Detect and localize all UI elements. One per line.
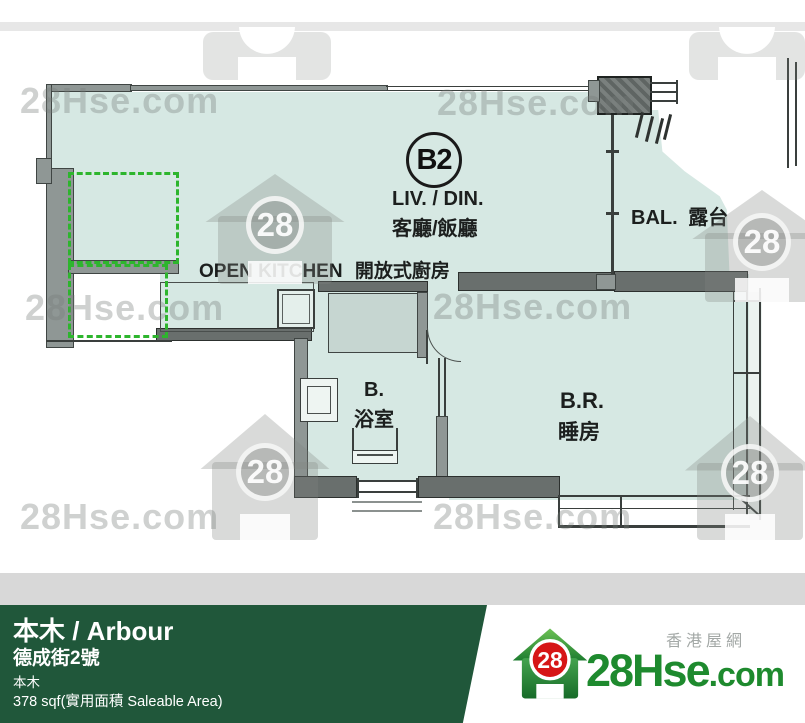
wall-segment	[438, 358, 440, 416]
dashed-zone-lower	[68, 264, 168, 338]
wall-segment	[294, 476, 357, 498]
living-label-en: LIV. / DIN.	[392, 188, 484, 211]
logo-main-text: 28Hse	[586, 645, 709, 697]
wall-segment	[282, 294, 310, 324]
wall-segment	[357, 480, 418, 482]
wall-segment	[759, 288, 761, 520]
logo-suffix-text: .com	[709, 656, 784, 695]
kitchen-appliance	[328, 293, 418, 353]
watermark-text: 28Hse.com	[433, 496, 632, 538]
wall-segment	[650, 100, 678, 102]
living-bedroom-wall	[458, 272, 614, 291]
unit-label: B2	[406, 132, 462, 188]
bedroom-area	[449, 274, 749, 500]
wall-segment	[357, 491, 418, 493]
property-address: 德成街2號	[13, 643, 100, 670]
watermark-house-icon	[203, 27, 331, 80]
balcony-label-en: BAL.	[631, 207, 678, 229]
wall-segment	[606, 212, 619, 215]
watermark-28-badge: 28	[733, 213, 791, 271]
wall-segment	[787, 58, 789, 168]
28hse-logo-icon: 28	[512, 626, 588, 709]
wall-segment	[558, 495, 750, 497]
wall-segment	[620, 495, 622, 527]
balcony-label: BAL. 露台	[631, 201, 728, 230]
floorplan-page: B2 LIV. / DIN. 客廳/飯廳 OPEN KITCHEN 開放式廚房 …	[0, 0, 805, 723]
wall-segment	[352, 501, 422, 503]
property-area: 378 sqf(實用面積 Saleable Area)	[13, 690, 223, 711]
living-label-zh: 客廳/飯廳	[392, 212, 478, 241]
watermark-28-badge: 28	[236, 443, 294, 501]
property-estate: 本木	[13, 671, 40, 691]
wall-segment	[733, 292, 734, 510]
unit-label-text: B2	[416, 144, 451, 177]
balcony-area	[612, 110, 752, 276]
wall-segment	[357, 478, 359, 498]
bedroom-label-zh: 睡房	[558, 416, 600, 446]
wall-segment	[444, 358, 446, 416]
bedroom-label-en: B.R.	[560, 388, 604, 414]
wall-segment	[558, 508, 750, 509]
wall-segment	[795, 62, 797, 166]
dashed-zone-upper	[68, 172, 179, 264]
wall-segment	[733, 372, 761, 374]
balcony-label-zh: 露台	[688, 207, 728, 229]
wash-basin	[352, 450, 398, 464]
balcony-bottom-wall	[614, 271, 748, 292]
wall-segment	[352, 510, 422, 512]
wall-segment	[307, 386, 331, 414]
wall-segment	[606, 150, 619, 153]
wall-segment	[357, 454, 393, 456]
wall-segment	[130, 85, 388, 91]
bathroom-label-en: B.	[364, 379, 384, 402]
kitchen-label: OPEN KITCHEN 開放式廚房	[199, 256, 450, 283]
toilet	[300, 378, 338, 422]
balcony-door	[611, 112, 614, 274]
wall-segment	[650, 91, 678, 93]
kitchen-label-zh: 開放式廚房	[355, 261, 450, 282]
wall-segment	[650, 82, 678, 84]
logo-28-badge: 28	[537, 647, 562, 673]
28hse-logo-text: 28Hse .com	[586, 645, 784, 697]
wall-segment	[558, 525, 750, 528]
kitchen-sink	[277, 289, 315, 329]
wall-segment	[596, 274, 616, 290]
watermark-text: 28Hse.com	[20, 496, 219, 538]
wall-segment	[416, 478, 418, 498]
kitchen-label-en: OPEN KITCHEN	[199, 261, 343, 282]
wall-segment	[746, 290, 748, 515]
wall-segment	[386, 86, 604, 91]
wall-segment	[46, 340, 172, 342]
wall-segment	[588, 80, 600, 102]
watermark-stripe	[0, 22, 805, 31]
footer: 本木 / Arbour 德成街2號 本木 378 sqf(實用面積 Saleab…	[0, 605, 805, 723]
wall-segment	[733, 300, 761, 302]
structural-column	[597, 76, 652, 115]
wall-segment	[36, 158, 52, 184]
bathroom-label-zh: 浴室	[354, 403, 394, 432]
wall-segment	[676, 80, 678, 104]
wall-segment	[558, 495, 560, 527]
wall-segment	[396, 428, 398, 452]
wall-segment	[436, 416, 448, 482]
wall-segment	[46, 84, 132, 92]
footer-divider-band	[0, 573, 805, 605]
wall-segment	[418, 476, 560, 498]
